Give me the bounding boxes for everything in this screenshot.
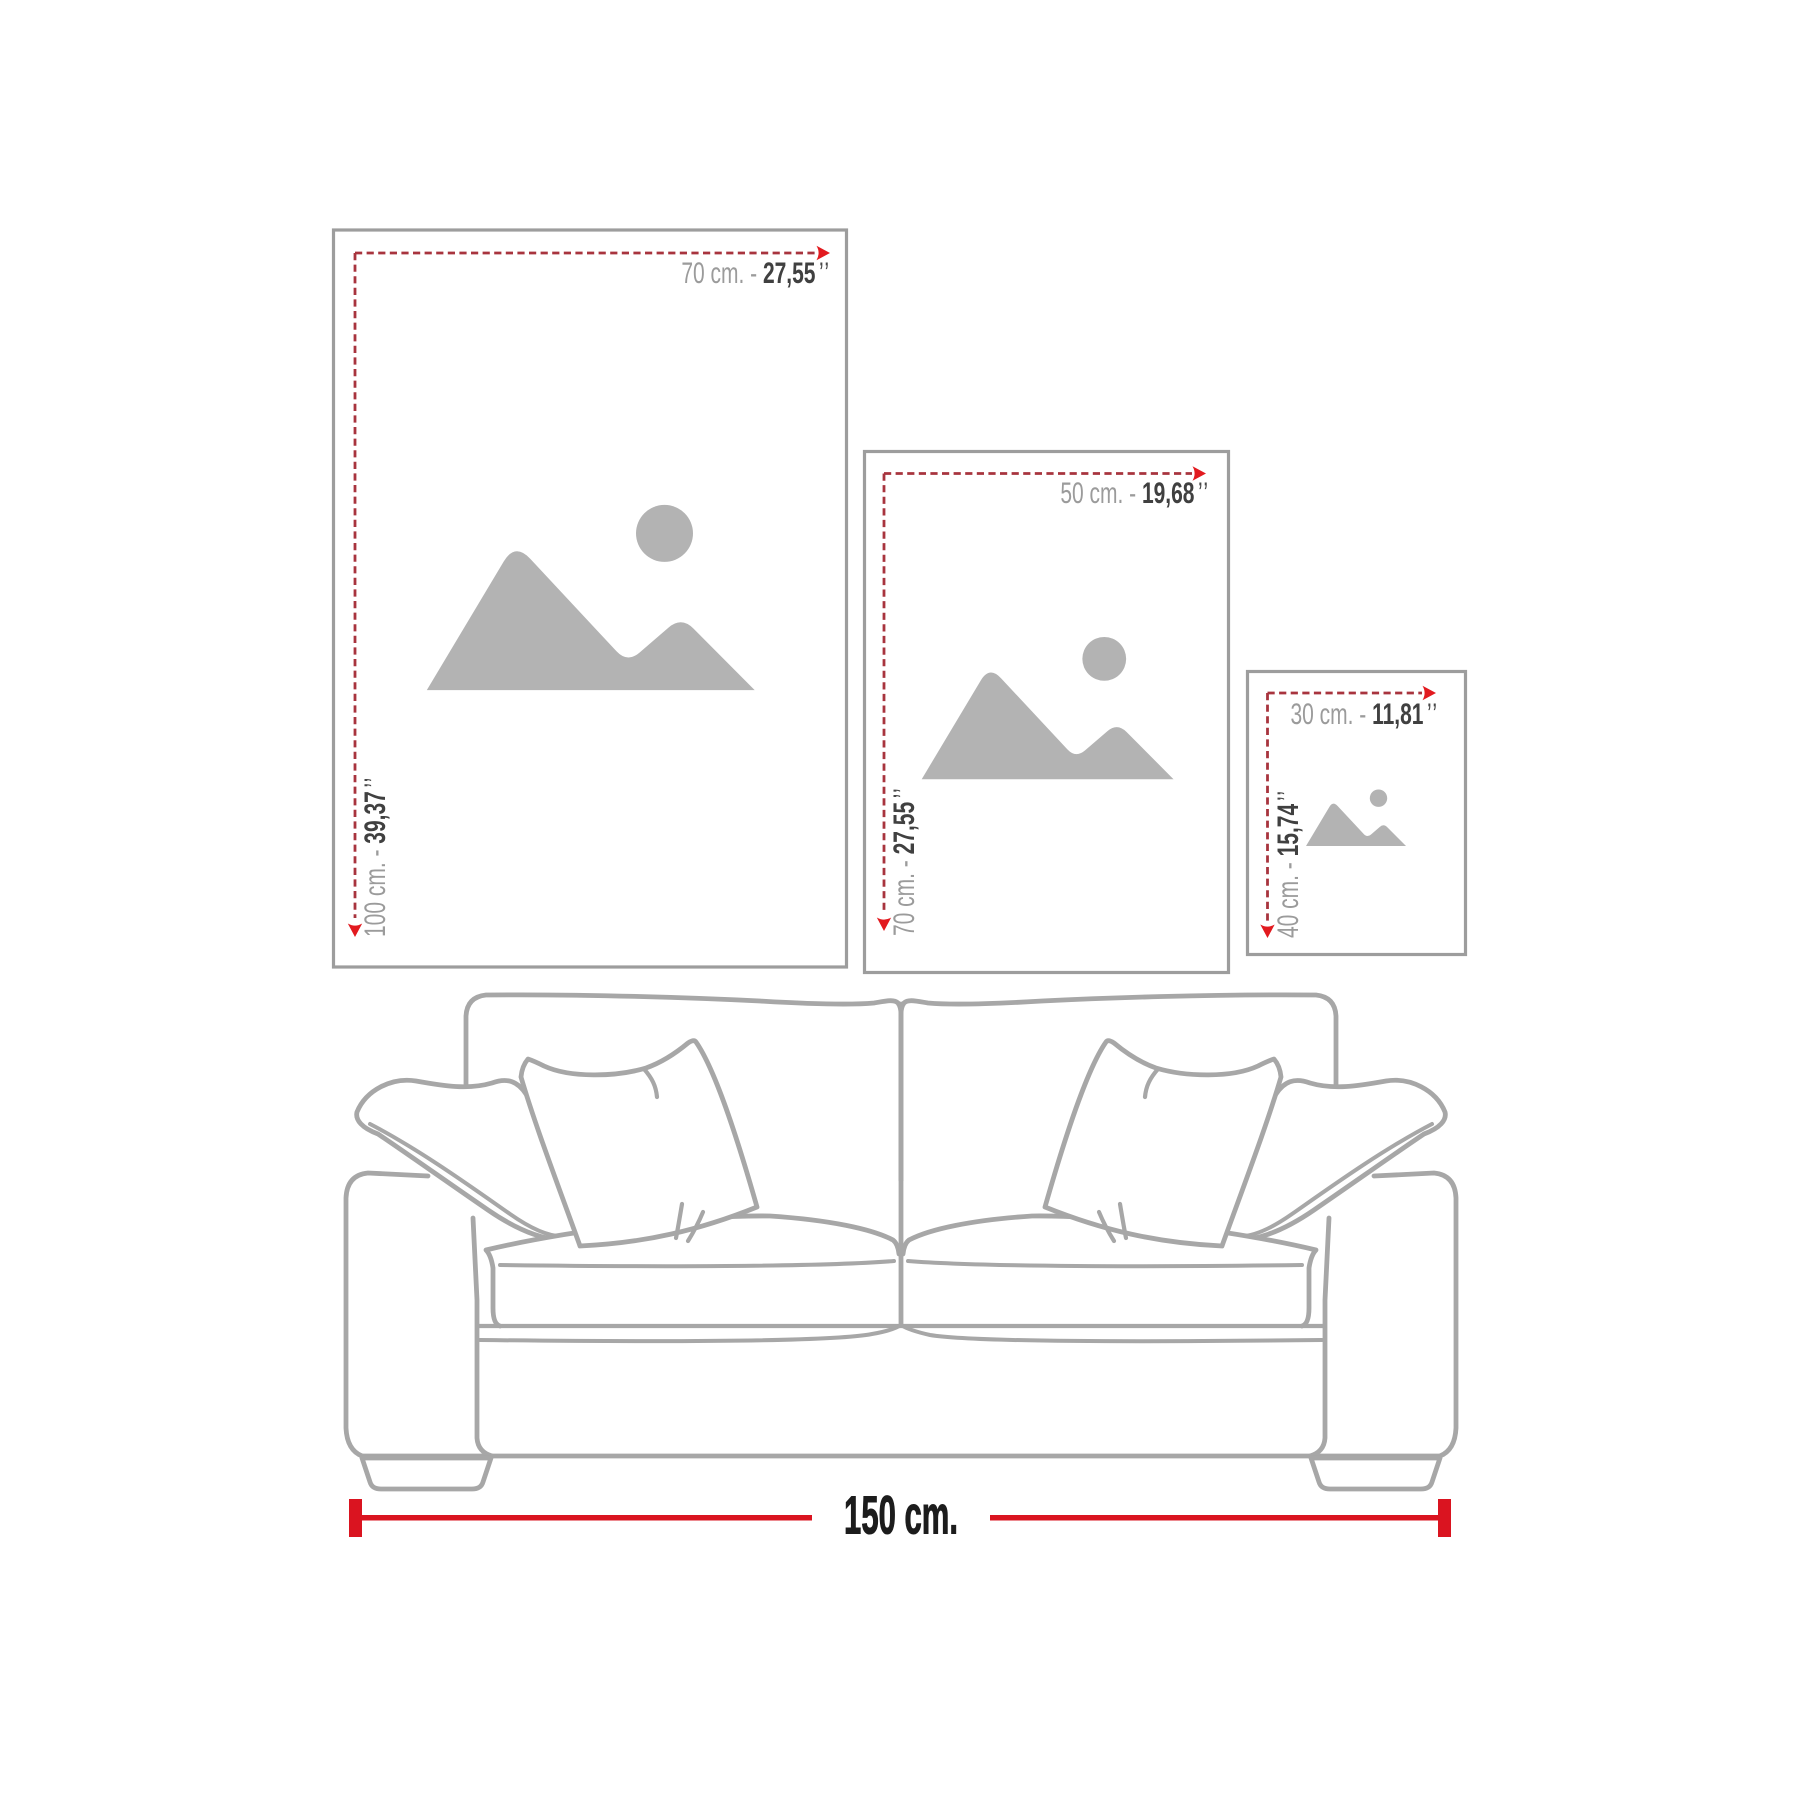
svg-text:30 cm. - 11,81’’: 30 cm. - 11,81’’ bbox=[1290, 699, 1437, 731]
svg-text:70 cm. - 27,55’’: 70 cm. - 27,55’’ bbox=[681, 258, 829, 290]
svg-text:100 cm. - 39,37’’: 100 cm. - 39,37’’ bbox=[360, 778, 392, 937]
svg-text:70 cm. - 27,55’’: 70 cm. - 27,55’’ bbox=[889, 788, 921, 936]
svg-text:150 cm.: 150 cm. bbox=[844, 1486, 958, 1546]
svg-text:50 cm. - 19,68’’: 50 cm. - 19,68’’ bbox=[1060, 478, 1208, 510]
svg-text:40 cm. - 15,74’’: 40 cm. - 15,74’’ bbox=[1273, 791, 1305, 938]
